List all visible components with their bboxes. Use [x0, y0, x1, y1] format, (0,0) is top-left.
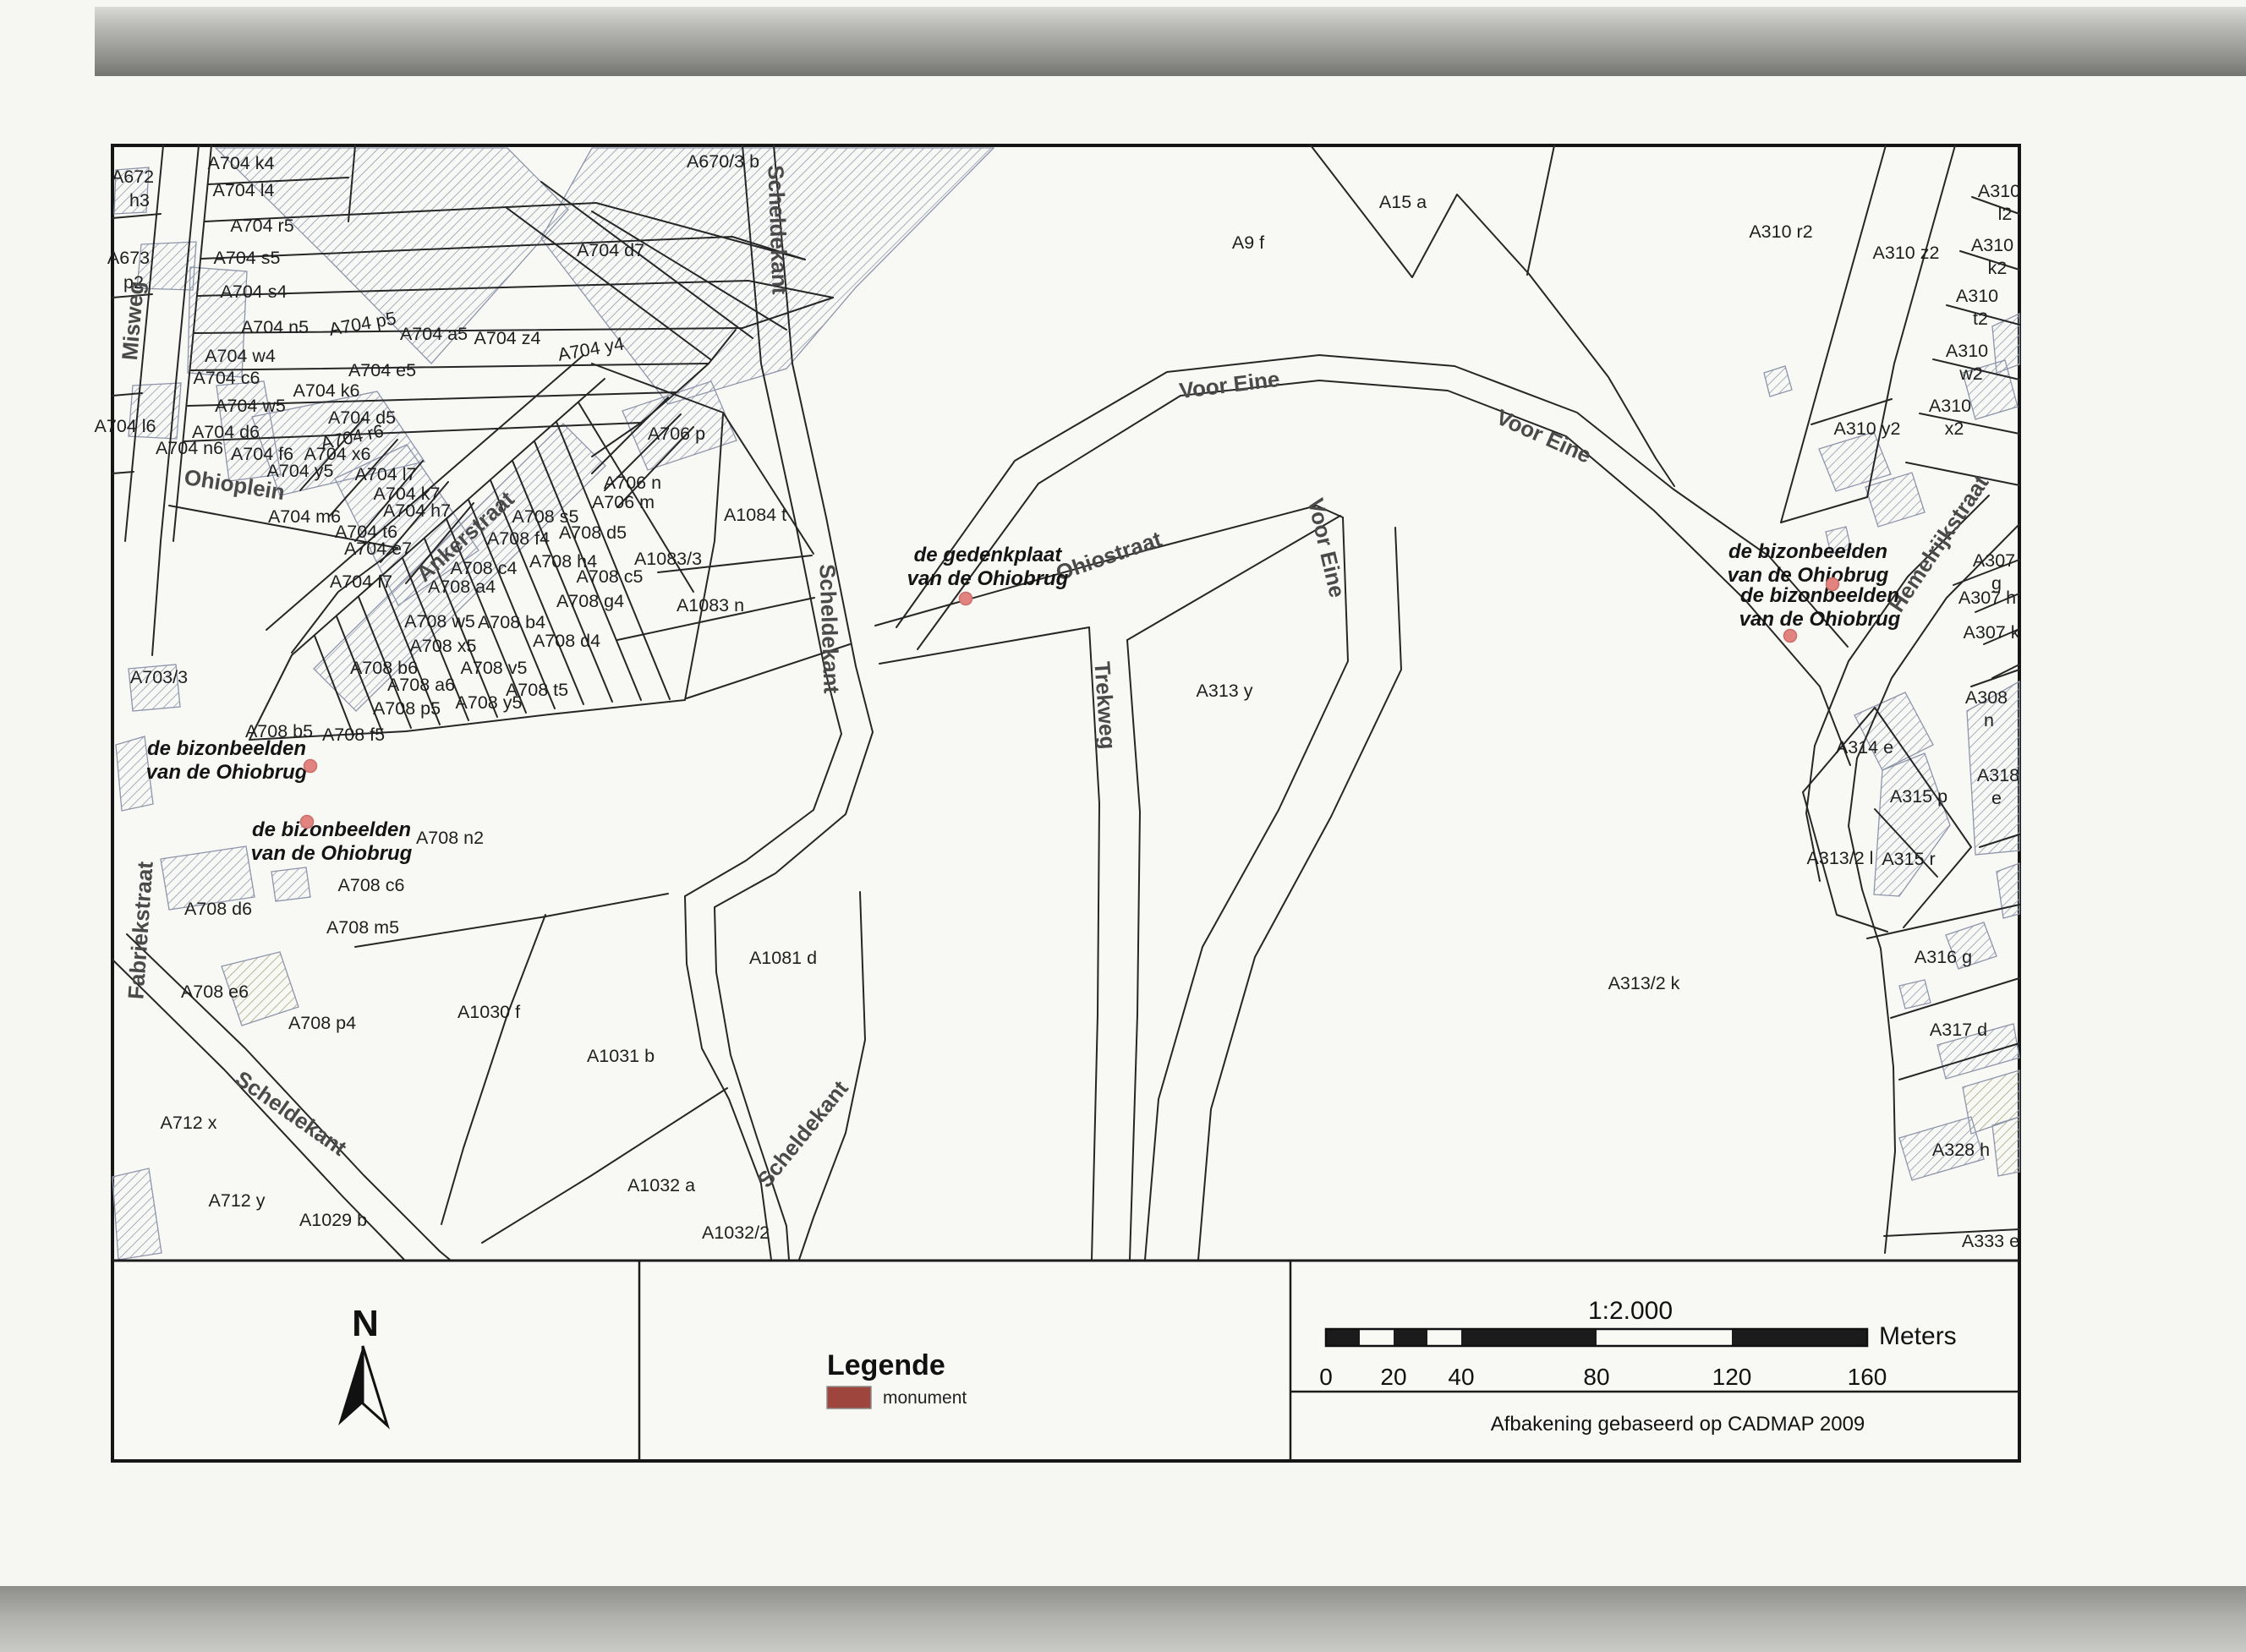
parcel-label: A704 r5: [230, 216, 293, 236]
parcel-label: A704 s4: [221, 282, 288, 302]
parcel-label: A704 z4: [474, 328, 541, 348]
parcel-label: A310: [1946, 341, 1988, 361]
scale-bar-segment: [1732, 1329, 1867, 1346]
scale-bar-segment: [1597, 1329, 1732, 1346]
legend-monument-swatch: [827, 1387, 871, 1409]
parcel-label: A708 v5: [461, 658, 528, 678]
parcel-label: A708 n2: [416, 828, 484, 848]
monument-annotation: de bizonbeeldenvan de Ohiobrug: [251, 818, 413, 865]
parcel-label: A708 x5: [410, 636, 477, 656]
parcel-label: A708 c6: [338, 875, 405, 895]
parcel-label: A704 c6: [194, 368, 260, 388]
parcel-label: A318: [1977, 765, 2019, 785]
monument-dot: [1827, 578, 1839, 591]
parcel-label: A314 e: [1836, 737, 1893, 758]
parcel-label: A308: [1965, 687, 2008, 708]
scale-bar-segment: [1394, 1329, 1427, 1346]
parcel-label: A307 k: [1964, 622, 2020, 643]
parcel-label: A708 f5: [322, 725, 385, 745]
monument-dot: [1784, 630, 1797, 643]
parcel-label: A704 n6: [156, 438, 223, 458]
monument-dot: [960, 593, 972, 605]
parcel-label: A704 l7: [355, 464, 417, 484]
monument-annotation: de bizonbeeldenvan de Ohiobrug: [1728, 540, 1889, 587]
parcel-label: A708 d4: [533, 631, 600, 651]
parcel-label: A313/2 k: [1608, 973, 1680, 993]
parcel-label: A672: [112, 167, 154, 187]
parcel-label: A310 z2: [1873, 243, 1940, 263]
parcel-label: A670/3 b: [687, 151, 759, 172]
parcel-label: l2: [1998, 204, 2013, 224]
parcel-label: A706 p: [648, 424, 705, 444]
parcel-label: A708 d5: [559, 522, 627, 543]
parcel-label: A317 d: [1930, 1020, 1987, 1040]
monument-annotation: de bizonbeeldenvan de Ohiobrug: [1739, 584, 1901, 631]
parcel-label: A1083/3: [634, 549, 702, 569]
map-frame: [112, 145, 2019, 1461]
parcel-label: A307: [1973, 550, 2015, 571]
parcel-label: A708 p4: [288, 1013, 356, 1033]
parcel-label: A15 a: [1379, 192, 1427, 212]
parcel-label: A712 x: [161, 1113, 217, 1133]
parcel-label: t2: [1973, 309, 1988, 329]
parcel-label: A712 y: [209, 1190, 266, 1211]
parcel-label: A708 f4: [487, 528, 550, 549]
parcel-label: A1032 a: [627, 1175, 695, 1195]
parcel-label: A704 w5: [215, 396, 286, 416]
parcel-label: A1081 d: [749, 948, 817, 968]
parcel-label: A313/2 l: [1807, 848, 1874, 868]
parcel-label: A310 r2: [1749, 222, 1812, 242]
north-label: N: [352, 1303, 379, 1344]
parcel-label: n: [1984, 710, 1994, 730]
hatched-building: [271, 867, 310, 901]
street-label: Scheldekant: [814, 564, 844, 694]
parcel-label: A1031 b: [587, 1046, 655, 1066]
parcel-label: A704 e5: [348, 360, 416, 380]
scale-ratio: 1:2.000: [1588, 1297, 1673, 1325]
parcel-label: A9 f: [1232, 232, 1264, 253]
parcel-label: A704 n5: [241, 317, 309, 337]
parcel-label: A1032/2: [702, 1223, 770, 1243]
scale-tick-label: 40: [1448, 1364, 1474, 1390]
parcel-label: A708 d6: [184, 899, 252, 919]
legend-monument-label: monument: [883, 1388, 967, 1408]
scale-bar-segments: [1326, 1329, 1867, 1346]
parcel-label: A310 y2: [1834, 418, 1901, 439]
parcel-label: A704 h7: [383, 501, 451, 521]
parcel-label: A708 g4: [556, 591, 624, 611]
parcel-label: A708 w5: [404, 611, 475, 632]
parcel-label: A704 k6: [293, 380, 360, 401]
parcel-label: A706 n: [604, 473, 661, 493]
scale-tick-label: 160: [1848, 1364, 1887, 1390]
parcel-label: A310: [1971, 235, 2013, 255]
parcel-label: A315 r: [1882, 849, 1935, 869]
parcel-label: A706 m: [592, 492, 655, 512]
parcel-label: A708 y5: [456, 692, 523, 713]
parcel-label: A708 p5: [373, 698, 441, 719]
parcel-label: A1030 f: [457, 1002, 520, 1022]
parcel-label: A704 w4: [205, 346, 276, 366]
parcel-label: A310: [1956, 286, 1998, 306]
monument-annotation: de gedenkplaatvan de Ohiobrug: [907, 544, 1069, 590]
hatched-building: [1899, 980, 1931, 1009]
parcel-label: A704 k4: [208, 153, 275, 173]
parcel-label: e: [1991, 788, 2002, 808]
scale-bar-segment: [1461, 1329, 1597, 1346]
parcel-label: w2: [1958, 364, 1982, 384]
parcel-label: A307 h: [1958, 588, 2016, 608]
parcel-label: A703/3: [130, 667, 188, 687]
parcel-label: A316 g: [1915, 947, 1972, 967]
parcel-label: A704 m6: [268, 506, 341, 527]
scale-bar-segment: [1326, 1329, 1360, 1346]
parcel-label: h3: [129, 190, 150, 211]
parcel-label: A708 a6: [387, 675, 455, 695]
parcel-label: A708 c5: [577, 566, 644, 587]
parcel-label: A310: [1978, 181, 2020, 201]
parcel-label: A704 a5: [400, 324, 468, 344]
parcel-label: A708 a4: [428, 577, 496, 597]
parcel-label: A673: [107, 248, 150, 268]
parcel-label: A704 s5: [214, 248, 281, 268]
scale-bar-segment: [1360, 1329, 1394, 1346]
scan-band-top: [95, 7, 2246, 76]
map-canvas: A672h3A673p2A704 k4A704 l4A704 r5A704 s5…: [0, 0, 2246, 1652]
parcel-label: A333 e: [1962, 1231, 2019, 1251]
scan-band-bottom: [0, 1586, 2246, 1652]
scanned-cadastral-map: A672h3A673p2A704 k4A704 l4A704 r5A704 s5…: [0, 0, 2246, 1652]
parcel-label: x2: [1945, 418, 1964, 439]
monument-annotation: de bizonbeeldenvan de Ohiobrug: [146, 737, 308, 784]
parcel-label: A704 l4: [213, 180, 275, 200]
parcel-label: A704 l6: [95, 416, 156, 436]
scale-tick-label: 0: [1319, 1364, 1333, 1390]
parcel-label: A704 d7: [577, 240, 644, 260]
monument-dot: [301, 816, 314, 829]
parcel-label: A313 y: [1197, 681, 1253, 701]
parcel-label: A310: [1929, 396, 1971, 416]
parcel-label: A1029 b: [299, 1210, 367, 1230]
scale-bar-segment: [1427, 1329, 1461, 1346]
parcel-label: A1083 n: [677, 595, 744, 615]
parcel-label: A708 e6: [181, 982, 249, 1002]
map-credit: Afbakening gebaseerd op CADMAP 2009: [1491, 1413, 1865, 1436]
parcel-label: A704 f7: [330, 572, 392, 592]
legend-title: Legende: [827, 1349, 945, 1381]
parcel-label: A708 c4: [451, 558, 518, 578]
parcel-label: A1084 t: [724, 505, 786, 525]
scale-unit: Meters: [1879, 1322, 1957, 1350]
parcel-label: A328 h: [1932, 1140, 1990, 1160]
monument-dot: [304, 760, 317, 773]
scale-tick-label: 120: [1712, 1364, 1752, 1390]
parcel-label: A708 m5: [326, 917, 399, 938]
scale-tick-label: 80: [1583, 1364, 1609, 1390]
parcel-label: A704 e7: [344, 539, 412, 559]
parcel-label: A708 b4: [478, 612, 545, 632]
parcel-label: k2: [1988, 258, 2008, 278]
scale-tick-label: 20: [1380, 1364, 1406, 1390]
parcel-label: A315 p: [1890, 786, 1947, 807]
street-label: Scheldekant: [763, 165, 792, 295]
